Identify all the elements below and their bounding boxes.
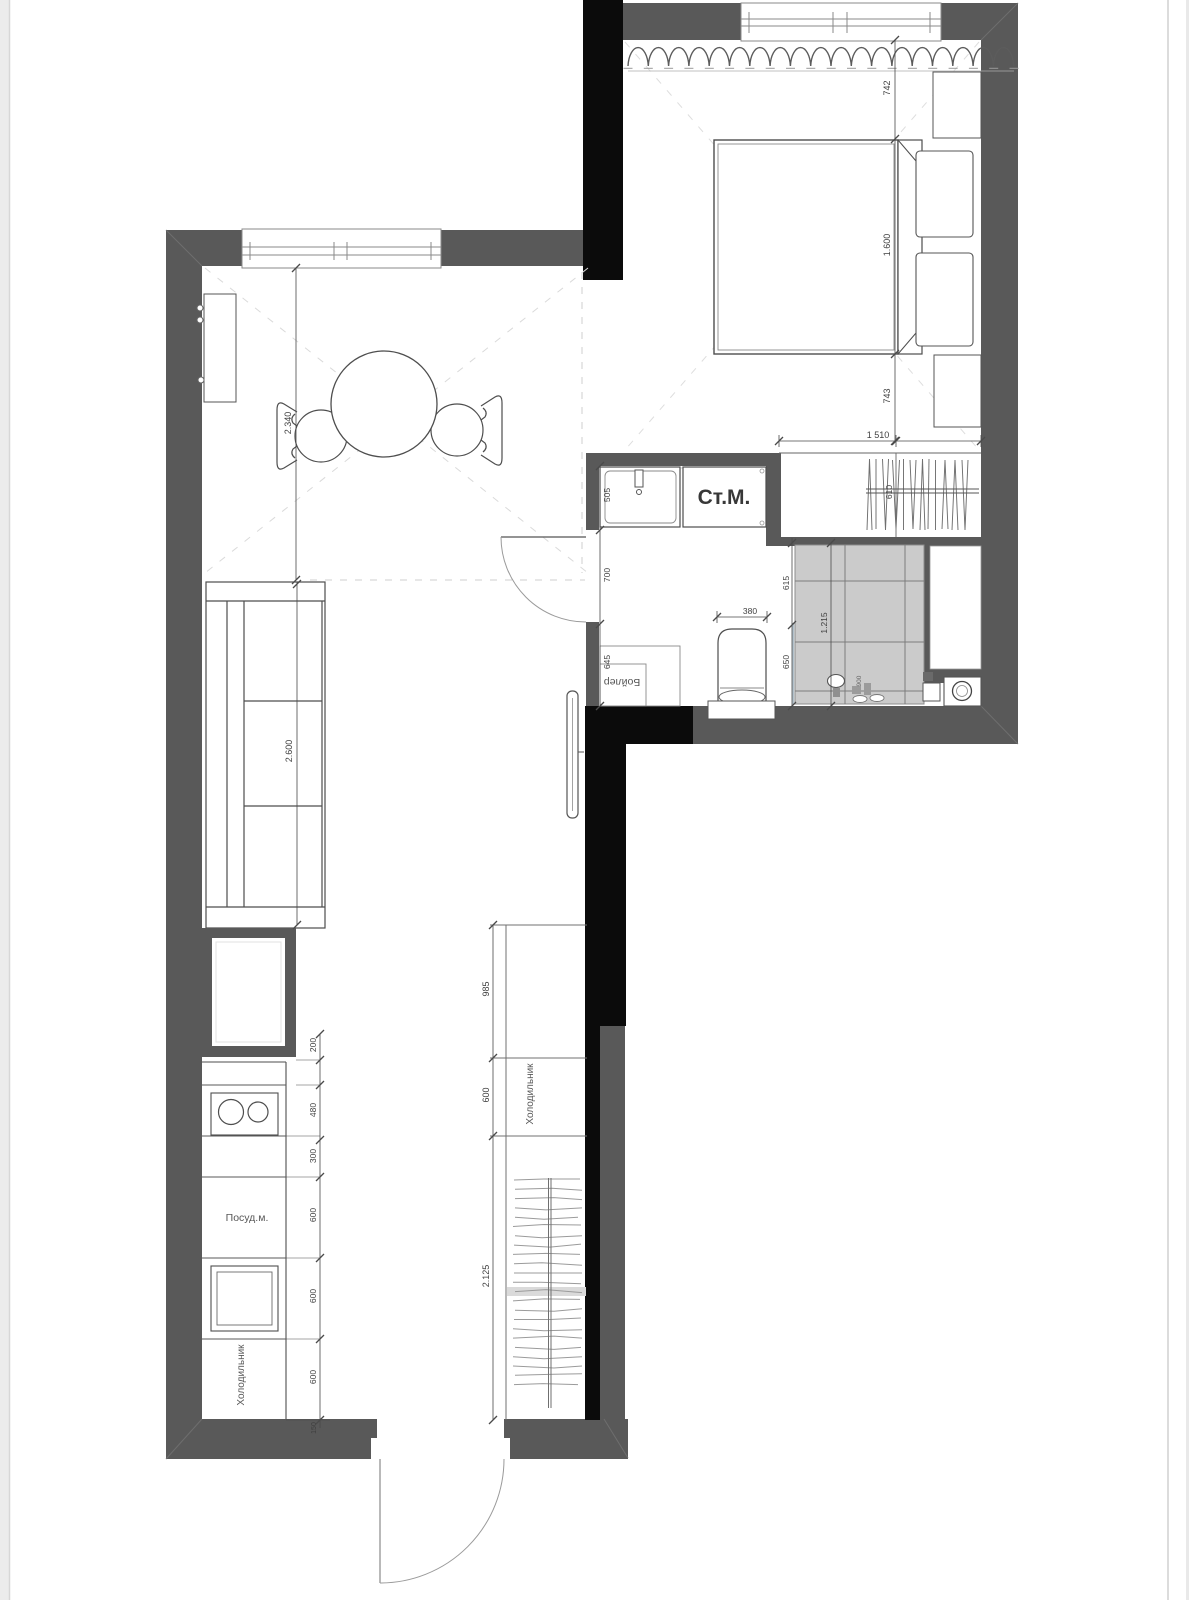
svg-text:600: 600 <box>308 1370 318 1384</box>
svg-text:2.125: 2.125 <box>481 1265 491 1288</box>
svg-text:743: 743 <box>882 388 892 403</box>
svg-text:615: 615 <box>781 576 791 590</box>
svg-text:600: 600 <box>308 1289 318 1303</box>
svg-text:Холодильник: Холодильник <box>525 1063 536 1125</box>
svg-text:Бойлер: Бойлер <box>604 676 641 688</box>
svg-text:600: 600 <box>308 1208 318 1222</box>
svg-text:380: 380 <box>743 606 757 616</box>
svg-text:742: 742 <box>882 80 892 95</box>
svg-text:200: 200 <box>308 1038 318 1052</box>
svg-text:2.340: 2.340 <box>283 412 293 435</box>
svg-text:610: 610 <box>884 485 894 499</box>
svg-text:900: 900 <box>856 675 863 686</box>
svg-text:150: 150 <box>311 1422 318 1434</box>
svg-text:480: 480 <box>308 1103 318 1117</box>
svg-text:Посуд.м.: Посуд.м. <box>226 1212 269 1224</box>
svg-text:Ст.М.: Ст.М. <box>698 486 751 509</box>
svg-text:700: 700 <box>602 568 612 582</box>
svg-text:1.600: 1.600 <box>882 234 892 257</box>
svg-text:Холодильник: Холодильник <box>236 1344 247 1406</box>
svg-text:650: 650 <box>781 655 791 669</box>
svg-text:645: 645 <box>602 655 612 669</box>
svg-text:505: 505 <box>602 488 612 502</box>
svg-text:985: 985 <box>481 981 491 996</box>
svg-text:1.215: 1.215 <box>819 612 829 634</box>
svg-text:300: 300 <box>308 1149 318 1163</box>
svg-text:2.600: 2.600 <box>284 740 294 763</box>
svg-text:1 510: 1 510 <box>867 430 890 440</box>
svg-text:600: 600 <box>481 1087 491 1102</box>
